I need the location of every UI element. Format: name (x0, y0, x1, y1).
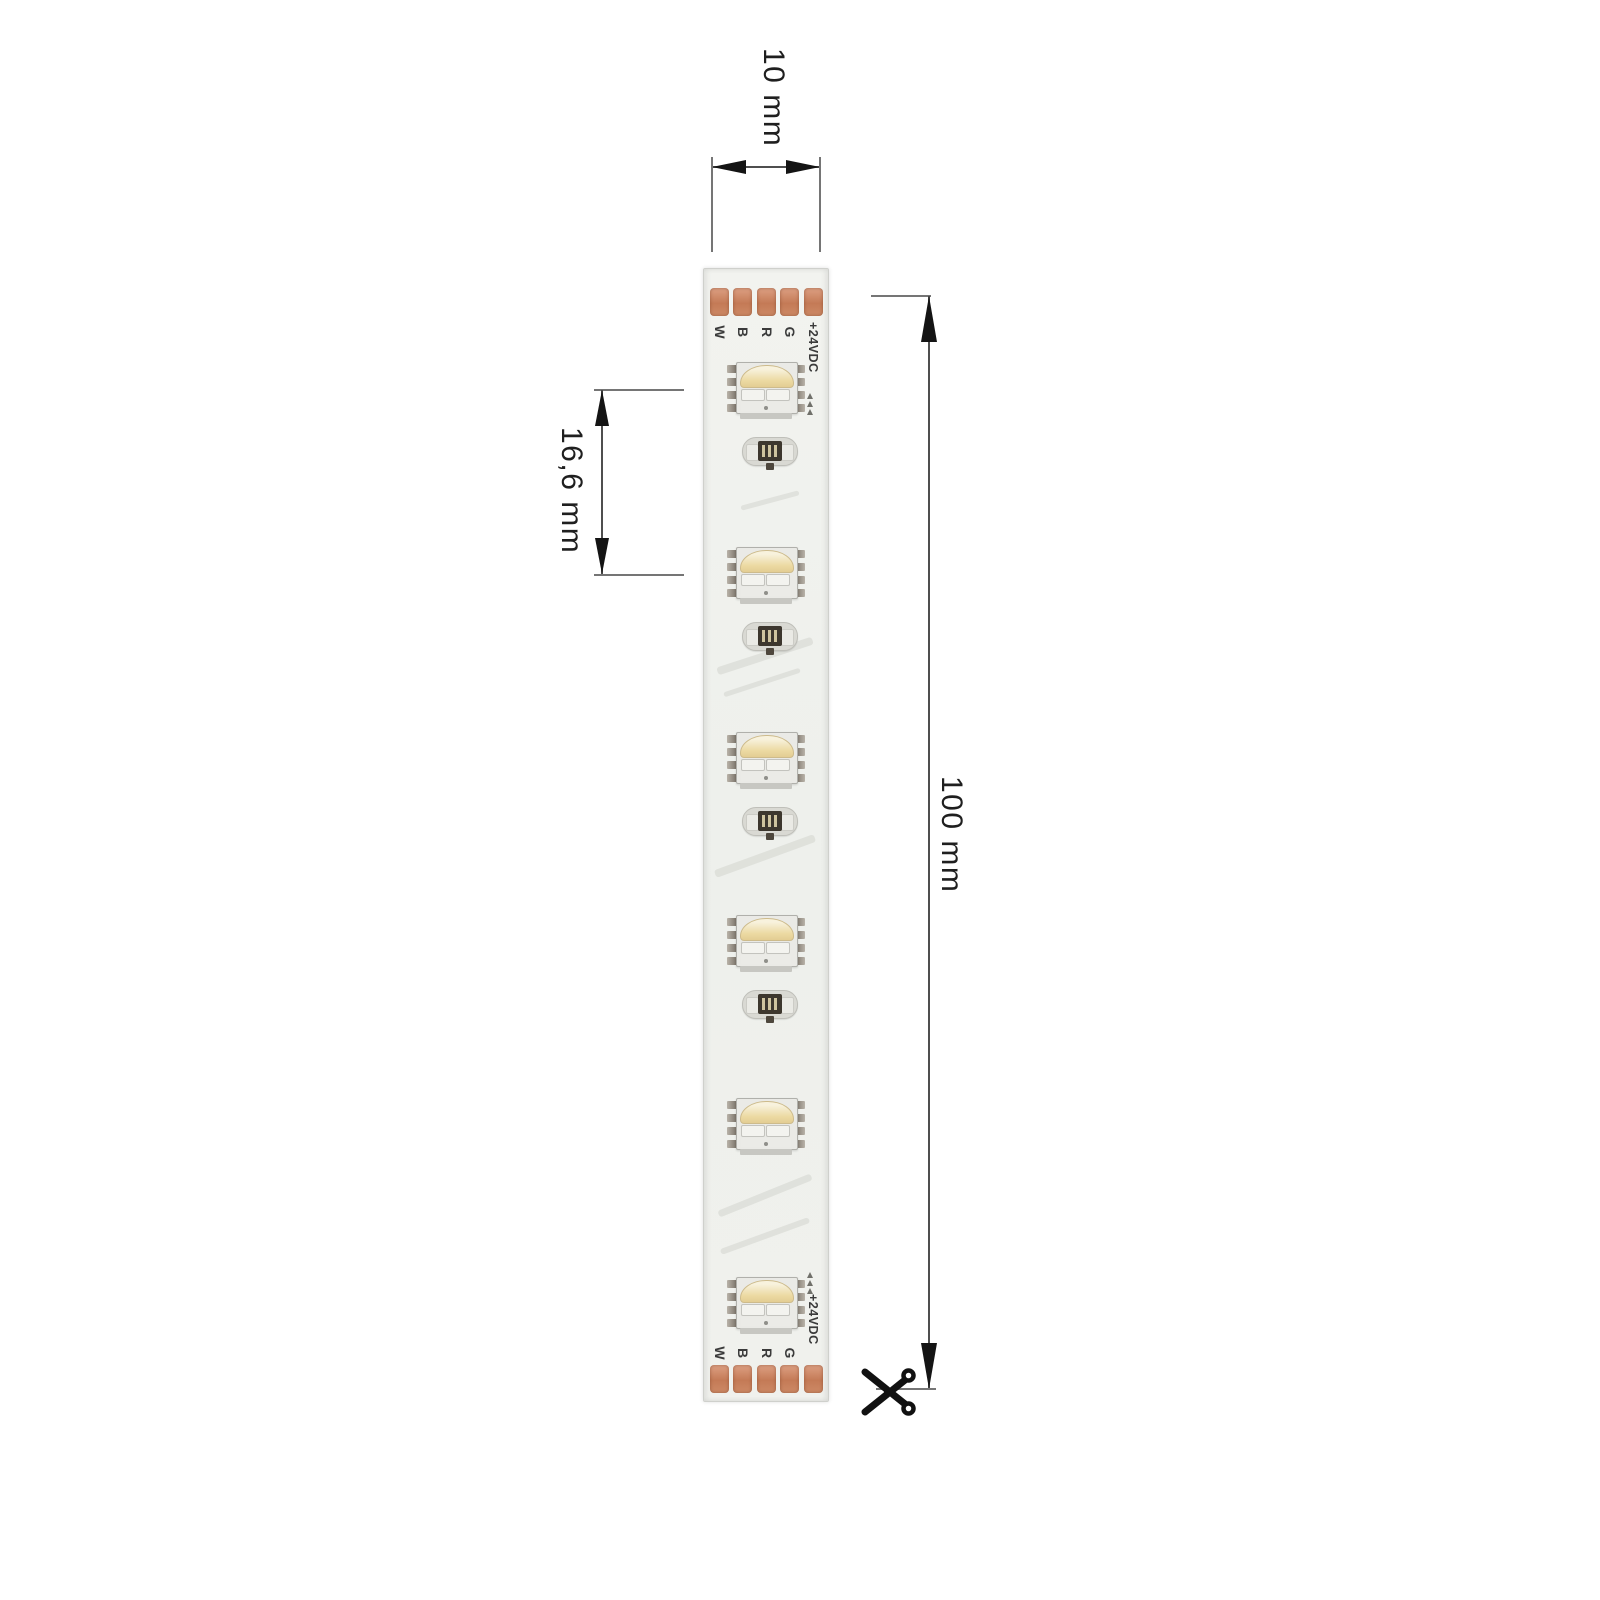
led-module (727, 362, 805, 420)
led-module (727, 915, 805, 973)
copper-pad (804, 1365, 823, 1393)
led-strip-dimension-diagram: 10 mm 16,6 mm 100 mm W B R G +24VDC (0, 0, 1600, 1600)
pad-label-g: G (782, 1344, 798, 1362)
resistor-stripe (762, 998, 765, 1010)
resistor-chip (758, 441, 782, 461)
led-cavity (766, 1304, 790, 1316)
scissors-icon (859, 1366, 919, 1418)
extension-line (819, 157, 821, 252)
led-pitch-label: 16,6 mm (554, 427, 588, 554)
resistor-stripe (768, 998, 771, 1010)
pad-label-24vdc: +24VDC (805, 322, 820, 392)
copper-pad (710, 1365, 729, 1393)
resistor-tab (766, 463, 774, 470)
resistor-end-pad (781, 629, 794, 646)
resistor-chip (758, 626, 782, 646)
copper-pad (780, 1365, 799, 1393)
led-module (727, 1098, 805, 1156)
led-pedestal (740, 783, 792, 789)
pad-label-r: R (759, 1344, 775, 1362)
led-pedestal (740, 966, 792, 972)
resistor-stripe (762, 815, 765, 827)
led-pedestal (740, 413, 792, 419)
resistor-stripe (774, 630, 777, 642)
resistor-stripe (768, 815, 771, 827)
resistor-chip (758, 994, 782, 1014)
copper-pad (804, 288, 823, 316)
copper-pad (757, 288, 776, 316)
resistor-stripe (768, 445, 771, 457)
led-cavity (766, 1125, 790, 1137)
arrowhead-down-icon (595, 538, 609, 574)
resistor-end-pad (781, 444, 794, 461)
resistor-end-pad (781, 997, 794, 1014)
led-cavity (741, 1125, 765, 1137)
copper-pad (733, 1365, 752, 1393)
arrowhead-up-icon (921, 296, 937, 342)
via-mark (807, 393, 813, 399)
led-cathode-dot (764, 1142, 768, 1146)
led-cathode-dot (764, 959, 768, 963)
copper-pad (710, 288, 729, 316)
via-mark (807, 1272, 813, 1278)
resistor (742, 437, 798, 466)
led-module (727, 732, 805, 790)
pad-label-b: B (735, 1344, 751, 1362)
pad-label-b: B (735, 323, 751, 341)
led-cavity (741, 574, 765, 586)
led-pedestal (740, 1149, 792, 1155)
led-cathode-dot (764, 1321, 768, 1325)
arrowhead-right-icon (786, 160, 820, 174)
strip-width-label: 10 mm (756, 48, 790, 147)
resistor-stripe (762, 630, 765, 642)
pad-label-r: R (759, 323, 775, 341)
pad-label-g: G (782, 323, 798, 341)
led-cavity (766, 942, 790, 954)
length-dimension-line (928, 296, 930, 1389)
resistor-stripe (774, 998, 777, 1010)
resistor-chip (758, 811, 782, 831)
extension-line (711, 157, 713, 252)
led-cavity (766, 389, 790, 401)
pad-label-24vdc: +24VDC (805, 1294, 820, 1364)
copper-pad (733, 288, 752, 316)
led-cavity (741, 759, 765, 771)
led-cathode-dot (764, 776, 768, 780)
via-mark (807, 1280, 813, 1286)
copper-pad (780, 288, 799, 316)
via-mark (807, 409, 813, 415)
resistor (742, 622, 798, 651)
led-cavity (741, 1304, 765, 1316)
cut-length-label: 100 mm (934, 776, 968, 893)
led-cathode-dot (764, 591, 768, 595)
led-cathode-dot (764, 406, 768, 410)
extension-line (594, 574, 684, 576)
led-module (727, 547, 805, 605)
arrowhead-up-icon (595, 390, 609, 426)
led-cavity (766, 574, 790, 586)
led-module (727, 1277, 805, 1335)
resistor-tab (766, 833, 774, 840)
resistor-tab (766, 1016, 774, 1023)
resistor-stripe (762, 445, 765, 457)
copper-pad (757, 1365, 776, 1393)
resistor-end-pad (781, 814, 794, 831)
via-mark (807, 401, 813, 407)
resistor (742, 807, 798, 836)
arrowhead-down-icon (921, 1343, 937, 1389)
led-pedestal (740, 1328, 792, 1334)
resistor-stripe (768, 630, 771, 642)
arrowhead-left-icon (712, 160, 746, 174)
resistor-stripe (774, 815, 777, 827)
led-cavity (766, 759, 790, 771)
led-cavity (741, 942, 765, 954)
resistor (742, 990, 798, 1019)
led-pedestal (740, 598, 792, 604)
resistor-stripe (774, 445, 777, 457)
resistor-tab (766, 648, 774, 655)
pad-label-w: W (712, 323, 728, 341)
led-cavity (741, 389, 765, 401)
pad-label-w: W (712, 1344, 728, 1362)
